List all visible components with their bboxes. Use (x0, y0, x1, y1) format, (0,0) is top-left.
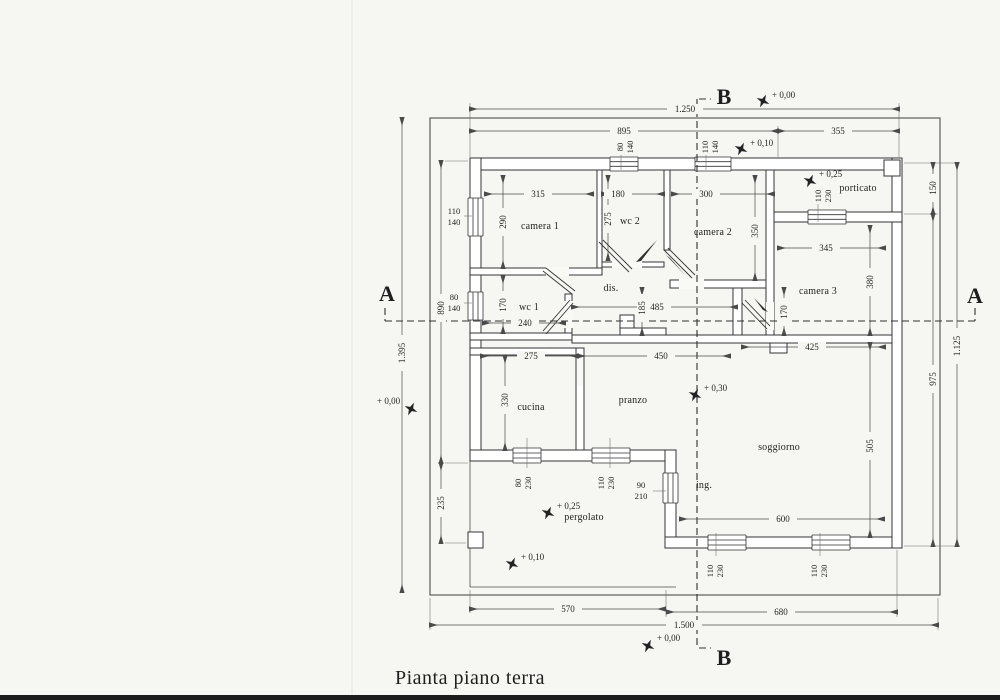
elevation-star-icon (539, 504, 558, 523)
svg-text:110: 110 (596, 477, 606, 489)
elevation-porticato: + 0,25 (801, 169, 843, 190)
dim-wc1-h: 170 (498, 298, 508, 312)
room-label-dis: dis. (604, 283, 619, 294)
svg-text:+ 0,25: + 0,25 (819, 169, 843, 179)
elevation-star-icon (754, 92, 773, 111)
scan-edge-bar (0, 695, 1000, 700)
wall-hall-south-soggiorno-north (572, 335, 892, 343)
svg-text:210: 210 (635, 491, 648, 501)
dim-hall-h: 185 (637, 301, 647, 315)
svg-text:230: 230 (606, 477, 616, 490)
dim-camera3-h: 380 (865, 275, 875, 289)
elevation-garden: + 0,10 (503, 552, 545, 573)
section-letter-a-right: A (967, 283, 983, 308)
window-camera1 (468, 198, 483, 236)
dimension-labels: 1.250 895 355 315 180 300 345 240 485 27… (397, 104, 962, 630)
elevation-site-top: + 0,00 (754, 90, 796, 110)
elevation-site-left: + 0,00 (377, 396, 420, 418)
svg-text:140: 140 (625, 141, 635, 154)
dim-total-top: 1.250 (675, 104, 696, 114)
chimney-base (620, 328, 666, 335)
svg-text:+ 0,10: + 0,10 (750, 138, 774, 148)
svg-text:140: 140 (448, 303, 461, 313)
dim-wc2-h: 275 (603, 212, 613, 226)
section-letter-b-bottom: B (717, 645, 732, 670)
window-porticato (808, 210, 846, 224)
extension-lines (430, 103, 960, 630)
wall-soggiorno-west-upper (733, 288, 742, 335)
dim-right-total: 1.125 (952, 335, 962, 356)
door-leaf-wc2 (636, 240, 657, 262)
wall-wc1-south (470, 333, 572, 340)
dim-left-building: 890 (436, 301, 446, 315)
svg-text:80: 80 (615, 143, 625, 152)
dim-building-top: 895 (617, 126, 631, 136)
dim-camera1-h: 290 (498, 215, 508, 229)
room-label-cucina: cucina (517, 402, 545, 413)
section-letter-b-top: B (717, 84, 732, 109)
soggiorno-pilaster (770, 343, 787, 353)
elevation-star-icon (503, 555, 522, 574)
room-label-porticato: porticato (839, 183, 876, 194)
svg-text:230: 230 (819, 565, 829, 578)
room-label-camera1: camera 1 (521, 221, 559, 232)
svg-text:+ 0,25: + 0,25 (557, 501, 581, 511)
dim-bottom-left: 570 (561, 604, 575, 614)
svg-text:140: 140 (448, 217, 461, 227)
window-pranzo (592, 448, 630, 463)
dim-hall-w: 485 (650, 302, 664, 312)
dim-porch-top: 355 (831, 126, 845, 136)
room-label-wc1: wc 1 (519, 302, 539, 313)
dim-bottom-right: 680 (774, 607, 788, 617)
svg-text:90: 90 (637, 480, 646, 490)
svg-text:140: 140 (710, 141, 720, 154)
dim-sogg-w: 600 (776, 514, 790, 524)
svg-text:+ 0,10: + 0,10 (521, 552, 545, 562)
wall-south-west (470, 450, 676, 461)
dim-left-total: 1.395 (397, 342, 407, 363)
svg-text:110: 110 (705, 565, 715, 577)
elevation-star-icon (402, 400, 421, 419)
svg-text:230: 230 (523, 477, 533, 490)
dim-pranzo-w: 450 (654, 351, 668, 361)
svg-text:+ 0,00: + 0,00 (377, 396, 401, 406)
label-window-pranzo: 110 230 (596, 438, 616, 489)
svg-text:110: 110 (813, 190, 823, 202)
dim-sogg-top-w: 425 (805, 342, 819, 352)
dim-wc1-w: 240 (518, 318, 532, 328)
room-label-soggiorno: soggiorno (758, 442, 800, 453)
svg-text:+ 0,30: + 0,30 (704, 383, 728, 393)
elevation-star-icon (686, 386, 705, 405)
window-soggiorno-a (708, 535, 746, 550)
elevation-star-icon (639, 637, 658, 656)
floor-plan-drawing: 1.250 895 355 315 180 300 345 240 485 27… (0, 0, 1000, 700)
door-ingresso (663, 473, 678, 503)
dim-camera2-h: 350 (750, 224, 760, 238)
wall-hall-north (470, 268, 602, 275)
chamfer-hall-ne (664, 248, 695, 278)
dim-cucina-h: 330 (500, 393, 510, 407)
label-window-cucina: 80 230 (513, 438, 533, 489)
svg-text:110: 110 (700, 141, 710, 153)
svg-text:+ 0,00: + 0,00 (772, 90, 796, 100)
elevation-interior: + 0,30 (686, 383, 728, 404)
dim-camera2-w: 300 (699, 189, 713, 199)
pergola-pillar (468, 532, 483, 548)
drawing-title: Pianta piano terra (395, 667, 545, 689)
dim-camera3-w: 345 (819, 243, 833, 253)
window-camera2 (695, 157, 731, 171)
dim-total-bottom: 1.500 (674, 620, 695, 630)
dim-corridor-h: 170 (779, 305, 789, 319)
dim-right-porch: 150 (928, 181, 938, 195)
wall-camera1-wc2 (597, 170, 602, 268)
elevation-star-icon (801, 172, 820, 191)
dim-cucina-w: 275 (524, 351, 538, 361)
dim-wc2-w: 180 (611, 189, 625, 199)
dim-right-building: 975 (928, 372, 938, 386)
elevation-walk-top: + 0,10 (732, 138, 774, 158)
svg-text:110: 110 (809, 565, 819, 577)
scanned-floor-plan-sheet: 1.250 895 355 315 180 300 345 240 485 27… (0, 0, 1000, 700)
dim-camera1-w: 315 (531, 189, 545, 199)
room-label-pergolato: pergolato (564, 512, 603, 523)
window-soggiorno-b (812, 535, 850, 550)
window-wc2 (610, 157, 638, 171)
svg-text:80: 80 (513, 479, 523, 488)
wall-south-soggiorno (665, 537, 902, 548)
dim-sogg-h: 505 (865, 439, 875, 453)
window-wc1 (468, 292, 483, 320)
label-door-ingresso: 90 210 (635, 480, 666, 501)
room-label-ingresso: ing. (696, 480, 712, 491)
elevation-star-icon (732, 140, 751, 159)
svg-text:230: 230 (823, 190, 833, 203)
room-label-camera2: camera 2 (694, 227, 732, 238)
elevation-site-bottom: + 0,00 (639, 633, 681, 655)
svg-text:80: 80 (450, 292, 459, 302)
room-label-wc2: wc 2 (620, 216, 640, 227)
svg-text:+ 0,00: + 0,00 (657, 633, 681, 643)
svg-text:110: 110 (448, 206, 460, 216)
dim-left-lower: 235 (436, 496, 446, 510)
room-label-camera3: camera 3 (799, 286, 837, 297)
room-label-pranzo: pranzo (619, 395, 647, 406)
section-letter-a-left: A (379, 281, 395, 306)
porticato-pillar (884, 160, 900, 176)
door-leaf-camera2 (666, 255, 686, 276)
svg-text:230: 230 (715, 565, 725, 578)
wall-wc2-camera2 (664, 170, 670, 250)
opening-labels: 110 140 80 140 80 140 110 140 11 (448, 141, 833, 578)
